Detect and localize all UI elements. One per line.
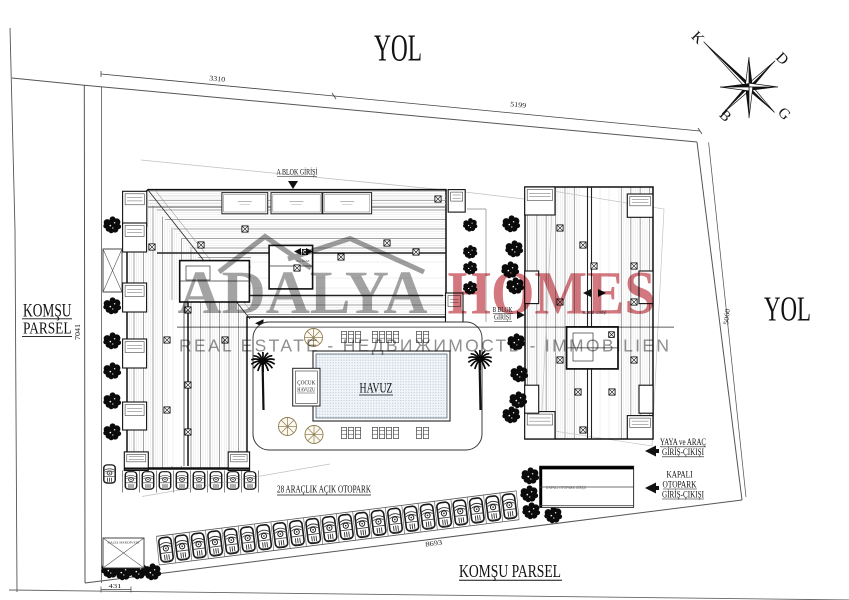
svg-text:YOL: YOL: [374, 28, 422, 70]
svg-text:KOMŞU PARSEL: KOMŞU PARSEL: [459, 561, 561, 581]
svg-text:YAYA ve ARAÇ: YAYA ve ARAÇ: [660, 437, 706, 447]
svg-text:KAÇIŞ MERDİVENİ: KAÇIŞ MERDİVENİ: [108, 540, 141, 545]
svg-text:431: 431: [109, 583, 122, 590]
svg-text:7041: 7041: [74, 323, 82, 340]
svg-text:OTOPARK: OTOPARK: [663, 480, 697, 490]
svg-text:3310: 3310: [209, 74, 226, 83]
svg-text:GİRİŞ-ÇIKIŞI: GİRİŞ-ÇIKIŞI: [662, 447, 704, 457]
svg-text:KAPALI: KAPALI: [667, 470, 693, 480]
svg-text:YOL: YOL: [764, 290, 811, 329]
svg-text:HOMES: HOMES: [448, 261, 656, 328]
svg-text:5199: 5199: [510, 100, 527, 109]
svg-text:GİRİŞ-ÇIKIŞI: GİRİŞ-ÇIKIŞI: [662, 490, 704, 500]
svg-text:A BLOK GİRİŞİ: A BLOK GİRİŞİ: [277, 168, 318, 177]
svg-text:KAPALI OTOPARK GİRİŞİ: KAPALI OTOPARK GİRİŞİ: [546, 485, 587, 490]
svg-text:HAVUZ: HAVUZ: [360, 381, 393, 397]
svg-text:ADALYA: ADALYA: [178, 260, 428, 327]
svg-text:ÇOCUK: ÇOCUK: [297, 381, 316, 387]
svg-text:HAVUZU: HAVUZU: [297, 388, 316, 394]
svg-text:28 ARAÇLIK AÇIK OTOPARK: 28 ARAÇLIK AÇIK OTOPARK: [277, 485, 371, 496]
svg-text:PARSEL: PARSEL: [23, 318, 72, 337]
